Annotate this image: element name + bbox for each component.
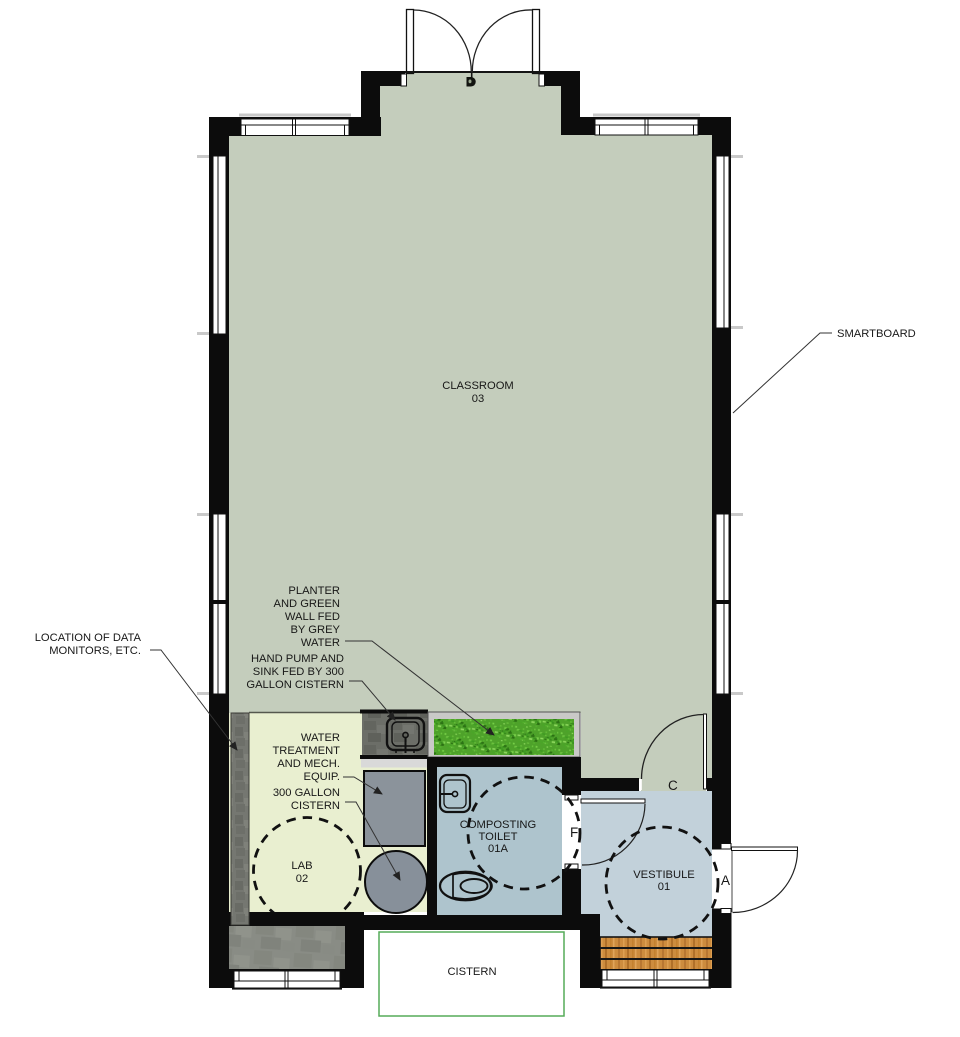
svg-text:WALL FED: WALL FED: [285, 611, 340, 623]
svg-text:MONITORS, ETC.: MONITORS, ETC.: [49, 645, 141, 657]
svg-text:AND GREEN: AND GREEN: [273, 598, 340, 610]
svg-text:SINK FED BY 300: SINK FED BY 300: [253, 666, 344, 678]
svg-text:LAB: LAB: [291, 860, 312, 872]
svg-text:PLANTER: PLANTER: [288, 585, 340, 597]
svg-text:CISTERN: CISTERN: [447, 966, 496, 978]
svg-text:GALLON CISTERN: GALLON CISTERN: [246, 679, 344, 691]
svg-text:WATER: WATER: [301, 732, 340, 744]
svg-text:WATER: WATER: [301, 637, 340, 649]
svg-text:03: 03: [472, 393, 484, 405]
svg-text:BY GREY: BY GREY: [290, 624, 340, 636]
svg-text:F: F: [570, 825, 578, 840]
svg-text:01: 01: [658, 881, 670, 893]
svg-text:EQUIP.: EQUIP.: [304, 771, 340, 783]
svg-text:VESTIBULE: VESTIBULE: [633, 869, 695, 881]
svg-text:SMARTBOARD: SMARTBOARD: [837, 328, 916, 340]
svg-text:CISTERN: CISTERN: [291, 800, 340, 812]
svg-text:HAND PUMP AND: HAND PUMP AND: [251, 653, 344, 665]
svg-text:COMPOSTING: COMPOSTING: [460, 819, 536, 831]
svg-text:A: A: [721, 873, 730, 888]
svg-text:01A: 01A: [488, 843, 508, 855]
svg-text:02: 02: [296, 873, 308, 885]
svg-text:CLASSROOM: CLASSROOM: [442, 380, 514, 392]
svg-text:C: C: [668, 778, 678, 793]
svg-text:TOILET: TOILET: [479, 831, 518, 843]
svg-text:LOCATION OF DATA: LOCATION OF DATA: [35, 632, 142, 644]
svg-text:AND MECH.: AND MECH.: [277, 758, 340, 770]
svg-text:300 GALLON: 300 GALLON: [273, 787, 340, 799]
svg-text:TREATMENT: TREATMENT: [272, 745, 340, 757]
